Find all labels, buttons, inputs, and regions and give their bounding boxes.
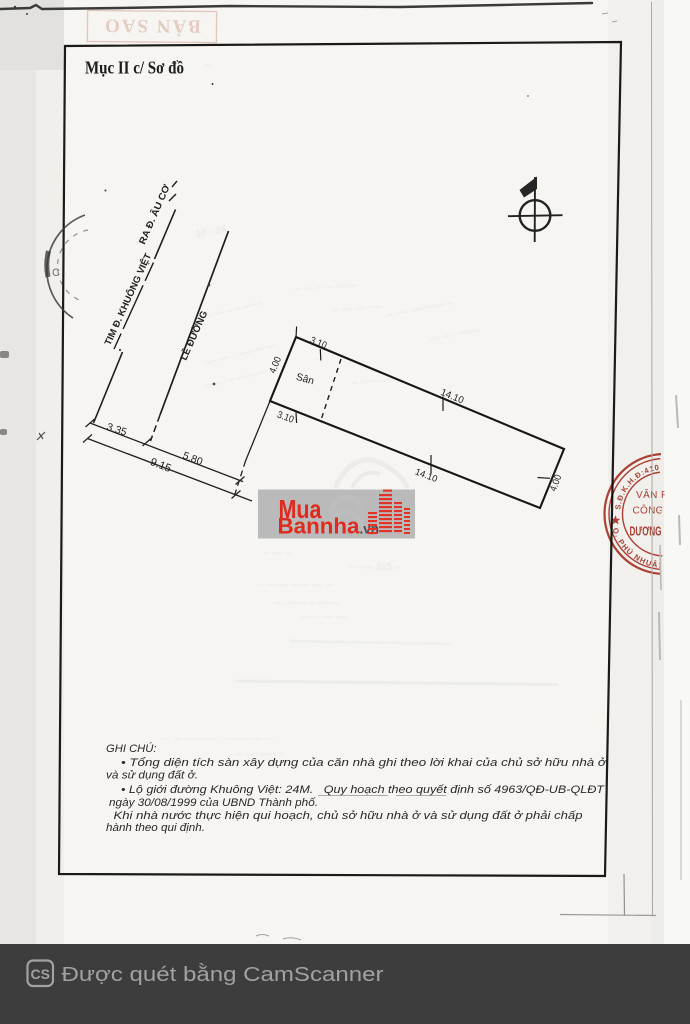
svg-text:Mục II c/ Sơ đồ: Mục II c/ Sơ đồ (85, 58, 184, 78)
svg-text:• Tổng diện tích sàn xây dựng: • Tổng diện tích sàn xây dựng của căn nh… (121, 757, 608, 769)
svg-text:C: C (52, 267, 60, 279)
svg-text:và sử dụng đất ở.: và sử dụng đất ở. (106, 770, 198, 782)
svg-text:·– —— –·— — ·–: ·– —— –·— — ·– (256, 580, 334, 591)
svg-text:hành theo qui định.: hành theo qui định. (106, 822, 205, 834)
svg-text:— ·– ——— · –— —— ·–: — ·– ——— · –— —— ·– (160, 734, 274, 745)
svg-text:CÔNG: CÔNG (633, 504, 664, 517)
svg-text:• Lộ giới đường Khuông Việt: 2: • Lộ giới đường Khuông Việt: 24M. Quy ho… (121, 784, 605, 796)
svg-text:– ·— ——·: – ·— ——· (236, 749, 284, 760)
svg-text:—·– –– —: —·– –– — (300, 612, 346, 623)
svg-text:·–·: ·–· (202, 60, 214, 71)
svg-text:CS: CS (30, 966, 49, 982)
svg-text:DƯƠNG: DƯƠNG (630, 525, 662, 539)
svg-text:BẢN SAO: BẢN SAO (103, 15, 201, 37)
svg-text:GHI CHÚ:: GHI CHÚ: (106, 742, 157, 755)
svg-text:– ·—— – ——·: – ·—— – ——· (275, 598, 341, 609)
svg-text:Được quét bằng CamScanner: Được quét bằng CamScanner (62, 963, 384, 986)
svg-text:ngày 30/08/1999 của UBND Thành: ngày 30/08/1999 của UBND Thành phố. (109, 797, 318, 809)
svg-text:– ·–– 315 –: – ·–– 315 – (350, 562, 401, 573)
svg-text:– — –·: – — –· (264, 548, 294, 559)
svg-text:Khi nhà nước thực hiện qui hoạ: Khi nhà nước thực hiện qui hoạch, chủ sở… (114, 810, 583, 822)
svg-text:Bannha: Bannha (278, 514, 361, 539)
